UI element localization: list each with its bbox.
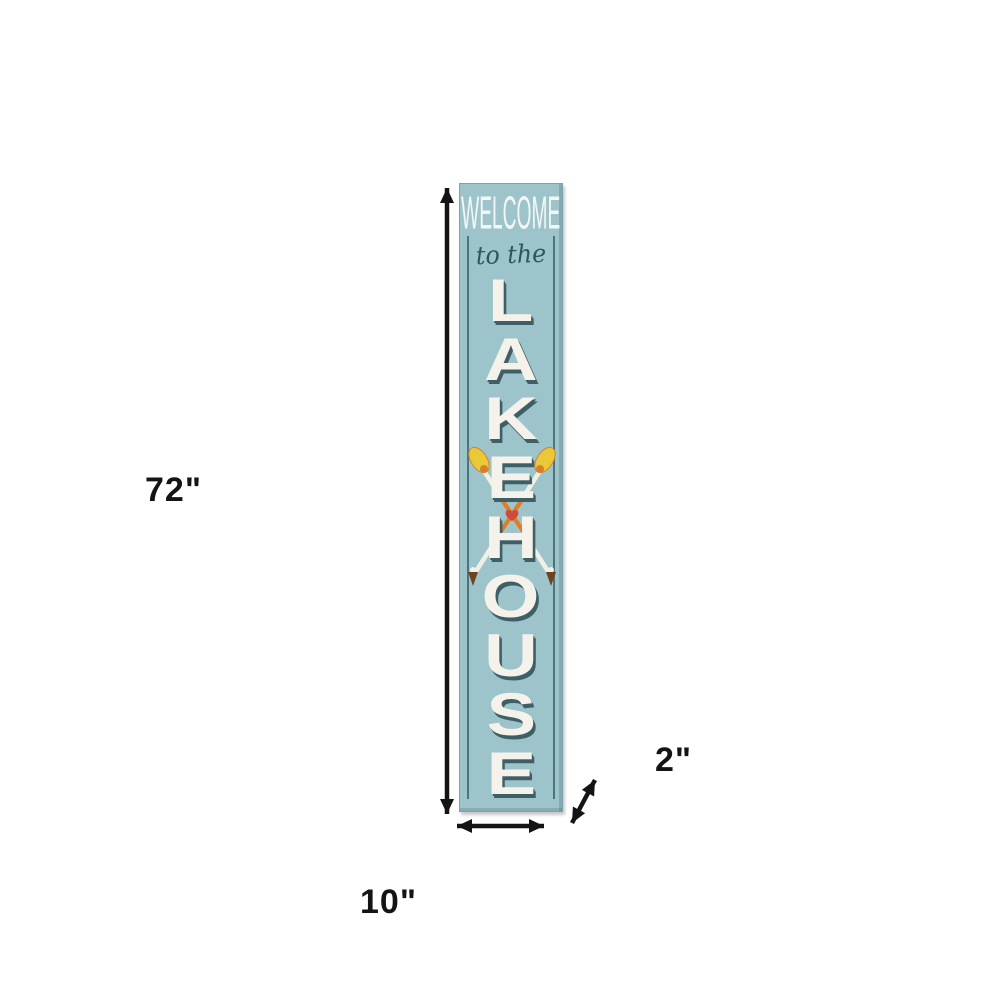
sign-letter: K <box>484 393 538 445</box>
sign-letter: U <box>484 630 538 682</box>
subtitle-text: to the <box>475 238 546 269</box>
sign-letter: E <box>486 452 536 504</box>
width-label: 10" <box>360 883 417 922</box>
depth-arrow <box>572 780 595 823</box>
sign-letter: S <box>486 689 536 741</box>
sign-letter: E <box>486 748 536 800</box>
lakehouse-letters: L A K E H O U S E <box>460 272 562 811</box>
lake-house-porch-sign: WELCOME to the L A <box>459 183 563 812</box>
sign-letter: O <box>482 571 540 623</box>
sign-letter: A <box>484 334 538 386</box>
sign-letter: L <box>488 275 533 327</box>
depth-label: 2" <box>655 741 692 780</box>
sign-letter: H <box>484 512 538 564</box>
welcome-text: WELCOME <box>461 186 560 240</box>
product-dimension-diagram: 72" 10" 2" WELCOME to the <box>0 0 1000 1000</box>
welcome-heading: WELCOME <box>460 190 562 236</box>
height-label: 72" <box>145 471 202 510</box>
